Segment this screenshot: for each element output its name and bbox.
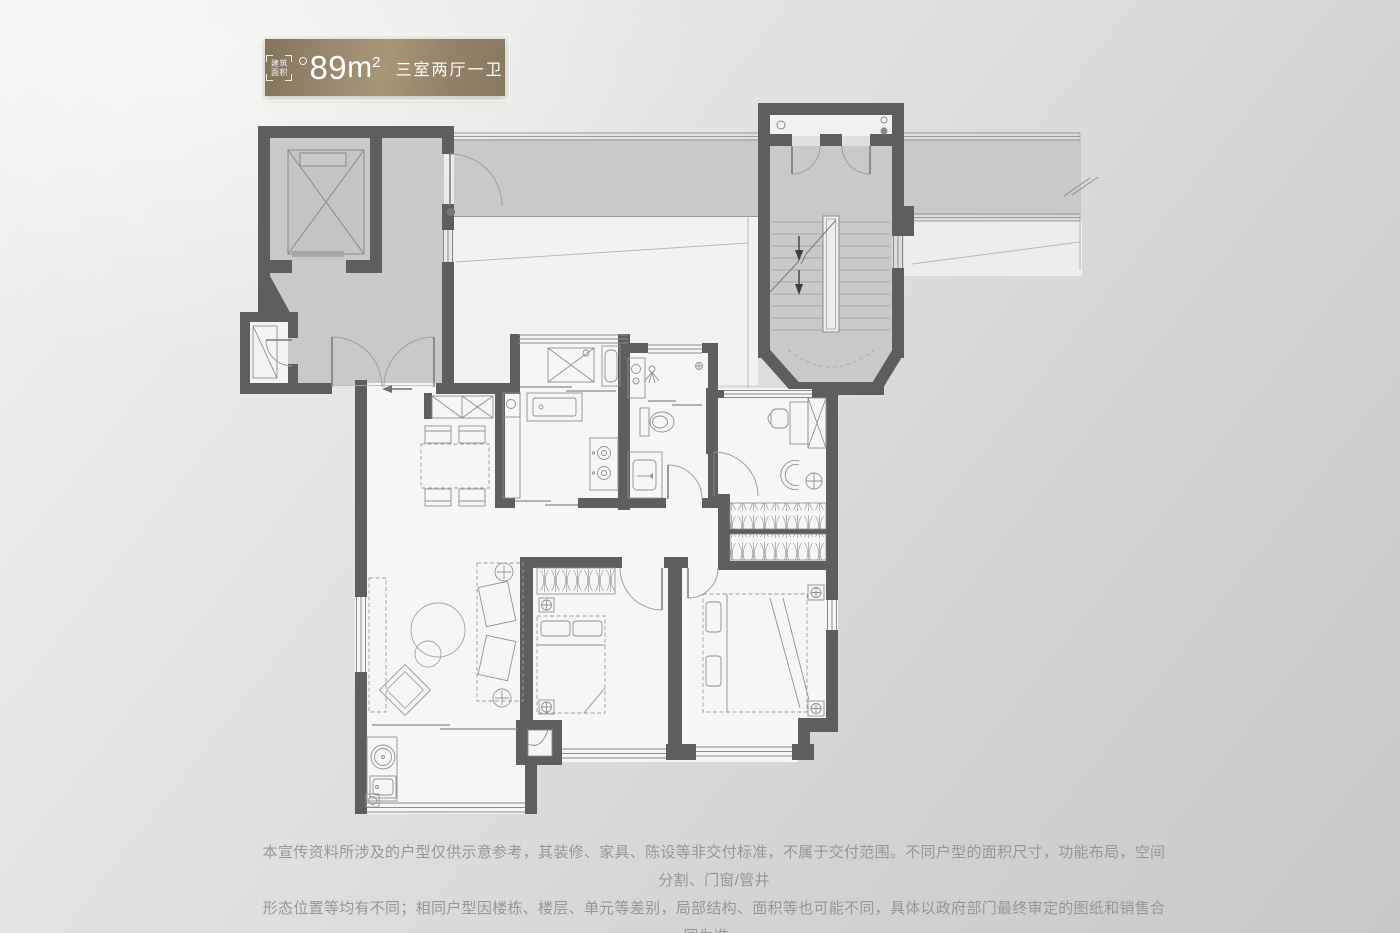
disclaimer-line-2: 形态位置等均有不同；相同户型因楼栋、楼层、单元等差别，局部结构、面积等也可能不同…: [260, 895, 1168, 933]
area-value: 89: [309, 51, 347, 84]
disclaimer: 本宣传资料所涉及的户型仅供示意参考，其装修、家具、陈设等非交付标准，不属于交付范…: [260, 839, 1168, 933]
floor-plan: [0, 0, 1400, 933]
disclaimer-line-1: 本宣传资料所涉及的户型仅供示意参考，其装修、家具、陈设等非交付标准，不属于交付范…: [260, 839, 1168, 895]
floor-plan-page: 建筑 面积 89 m 2 三室两厅一卫 本宣传资料所涉及的户型仅供示意参考，其装…: [0, 0, 1400, 933]
area-unit-exponent: 2: [372, 55, 380, 70]
area-icon-text-bottom: 面积: [271, 68, 288, 77]
elevator: [288, 150, 364, 256]
degree-ring-icon: [299, 57, 307, 65]
building-area-icon: 建筑 面积: [266, 55, 292, 81]
area-badge: 建筑 面积 89 m 2 三室两厅一卫: [265, 39, 505, 96]
pipe-shaft: [528, 730, 552, 756]
area-icon-text-top: 建筑: [271, 59, 288, 68]
area-unit: m: [347, 53, 372, 83]
layout-label: 三室两厅一卫: [396, 56, 504, 80]
